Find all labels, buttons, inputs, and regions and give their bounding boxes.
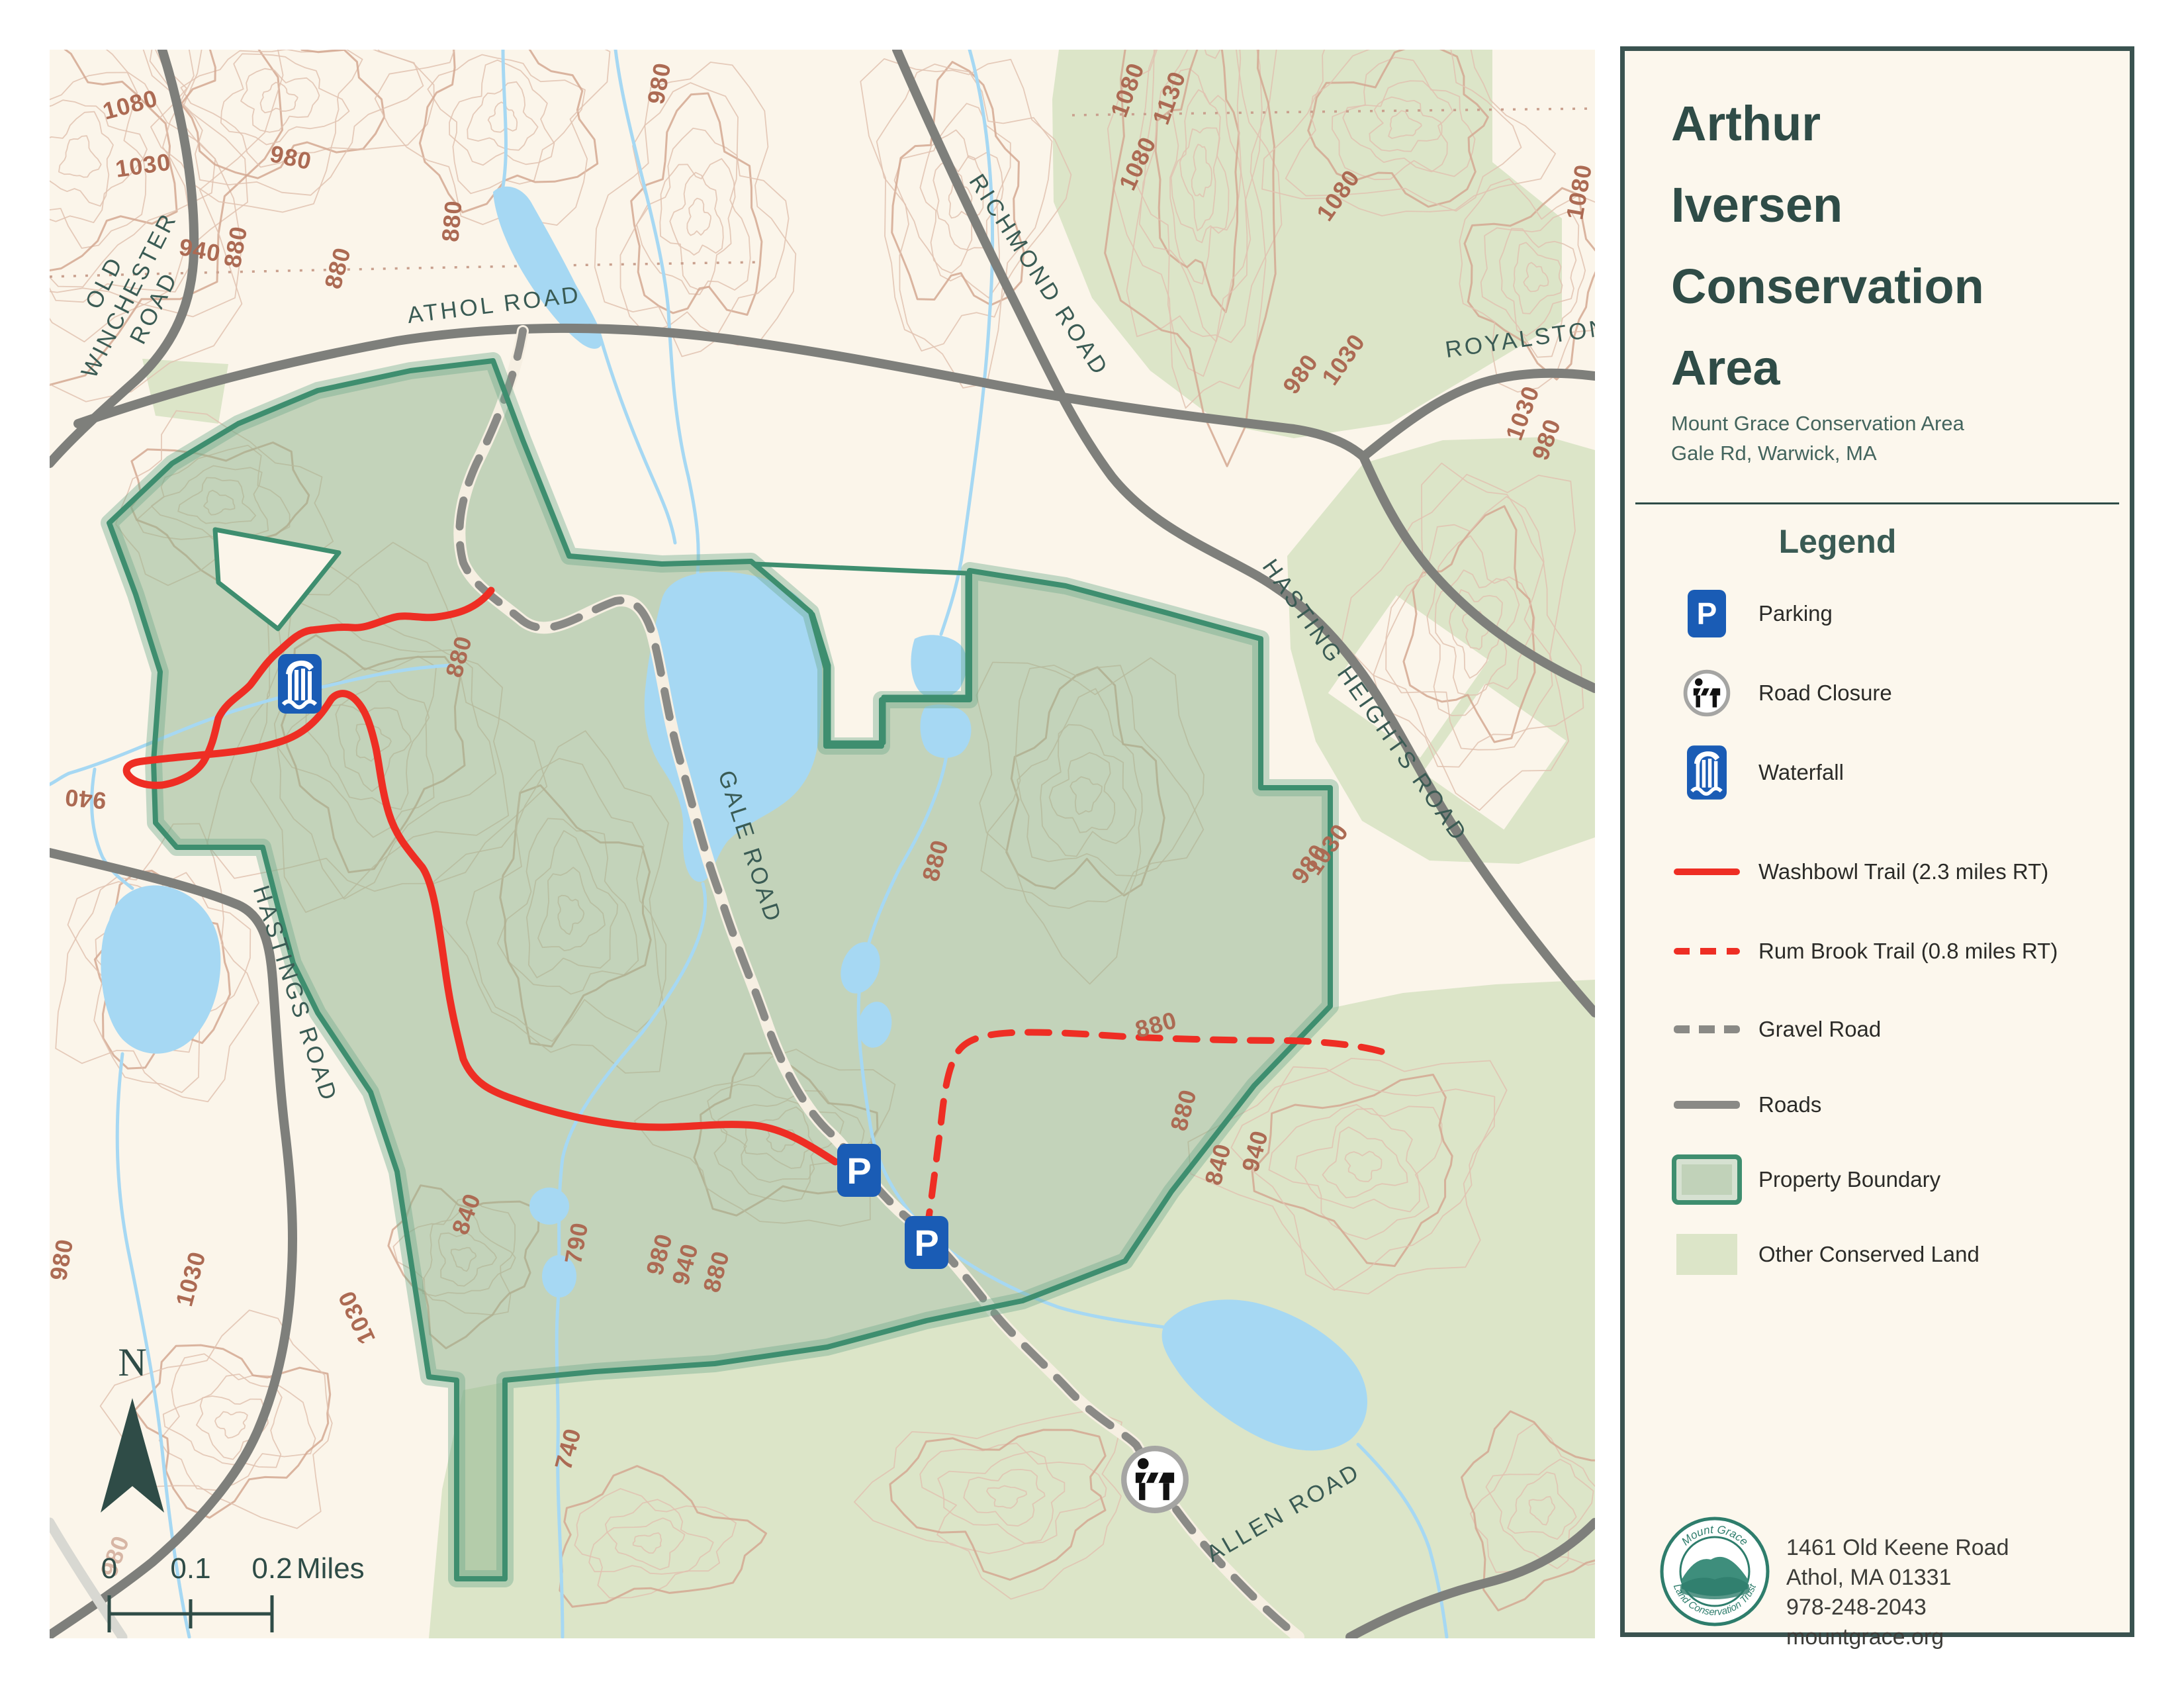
road-closure-icon [1683, 669, 1731, 717]
waterfall-marker [278, 654, 322, 714]
legend-row-road-closure: Road Closure [1667, 667, 2110, 720]
other-conserved-land-swatch [1676, 1234, 1737, 1275]
legend-title: Legend [1625, 522, 2050, 561]
gravel-road-line [1674, 1025, 1740, 1033]
subtitle: Mount Grace Conservation Area Gale Rd, W… [1671, 408, 1964, 468]
svg-text:0.2: 0.2 [251, 1552, 292, 1585]
road-closure-marker [1124, 1448, 1186, 1511]
roads-line [1674, 1101, 1740, 1109]
legend-row-property-boundary: Property Boundary [1667, 1153, 2110, 1206]
mount-grace-logo: Mount Grace Land Conservation Trust [1659, 1516, 1770, 1630]
divider [1635, 502, 2119, 504]
contour-label: 880 [436, 199, 467, 243]
title-line: Area [1671, 327, 1984, 408]
info-panel: Arthur Iversen Conservation Area Mount G… [1620, 46, 2134, 1637]
svg-text:N: N [118, 1340, 146, 1384]
page: 1080103098094088088088098010801130108010… [0, 0, 2184, 1688]
rum-brook-trail-line [1674, 948, 1740, 955]
legend-row-parking: P Parking [1667, 587, 2110, 640]
svg-text:P: P [914, 1222, 938, 1264]
parking-marker-2: P [905, 1216, 948, 1269]
legend-row-gravel: Gravel Road [1667, 1003, 2110, 1056]
property-boundary-swatch [1672, 1154, 1742, 1205]
legend-row-waterfall: Waterfall [1667, 746, 2110, 799]
svg-text:0.1: 0.1 [170, 1552, 210, 1585]
legend-row-washbowl: Washbowl Trail (2.3 miles RT) [1667, 845, 2110, 898]
contour-label: 940 [64, 784, 107, 814]
parking-icon: P [1688, 590, 1726, 637]
svg-text:P: P [846, 1150, 871, 1192]
title-line: Iversen [1671, 164, 1984, 246]
svg-text:Miles: Miles [296, 1552, 365, 1585]
parking-marker-1: P [837, 1144, 881, 1197]
page-title: Arthur Iversen Conservation Area [1671, 83, 1984, 408]
trail-map: 1080103098094088088088098010801130108010… [50, 50, 1595, 1638]
title-line: Conservation [1671, 246, 1984, 327]
legend-row-other-conserved: Other Conserved Land [1667, 1228, 2110, 1281]
legend-row-rum-brook: Rum Brook Trail (0.8 miles RT) [1667, 925, 2110, 978]
contact-info: 1461 Old Keene Road Athol, MA 01331 978-… [1786, 1533, 2009, 1652]
waterfall-icon [1687, 745, 1727, 800]
title-line: Arthur [1671, 83, 1984, 164]
legend-row-roads: Roads [1667, 1078, 2110, 1131]
svg-text:0: 0 [101, 1552, 117, 1585]
washbowl-trail-line [1674, 868, 1740, 875]
